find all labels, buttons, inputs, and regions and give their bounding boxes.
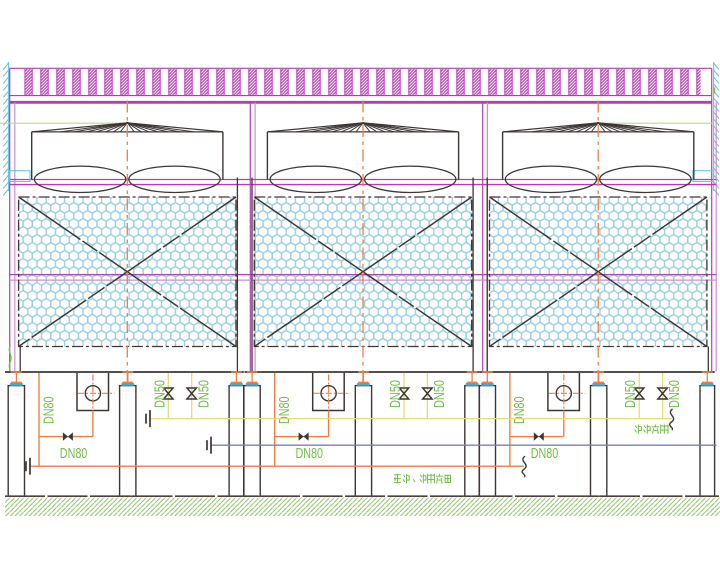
svg-text:DN80: DN80 <box>296 446 324 462</box>
svg-text:DN80: DN80 <box>531 446 559 462</box>
svg-text:DN80: DN80 <box>41 397 57 425</box>
svg-text:DN50: DN50 <box>388 380 404 408</box>
svg-text:DN50: DN50 <box>152 380 168 408</box>
svg-text:DN50: DN50 <box>623 380 639 408</box>
svg-text:DN80: DN80 <box>277 397 293 425</box>
svg-text:DN50: DN50 <box>667 380 683 408</box>
svg-text:DN50: DN50 <box>432 380 448 408</box>
svg-text:DN80: DN80 <box>512 397 528 425</box>
svg-text:DN80: DN80 <box>60 446 88 462</box>
svg-text:DN50: DN50 <box>196 380 212 408</box>
